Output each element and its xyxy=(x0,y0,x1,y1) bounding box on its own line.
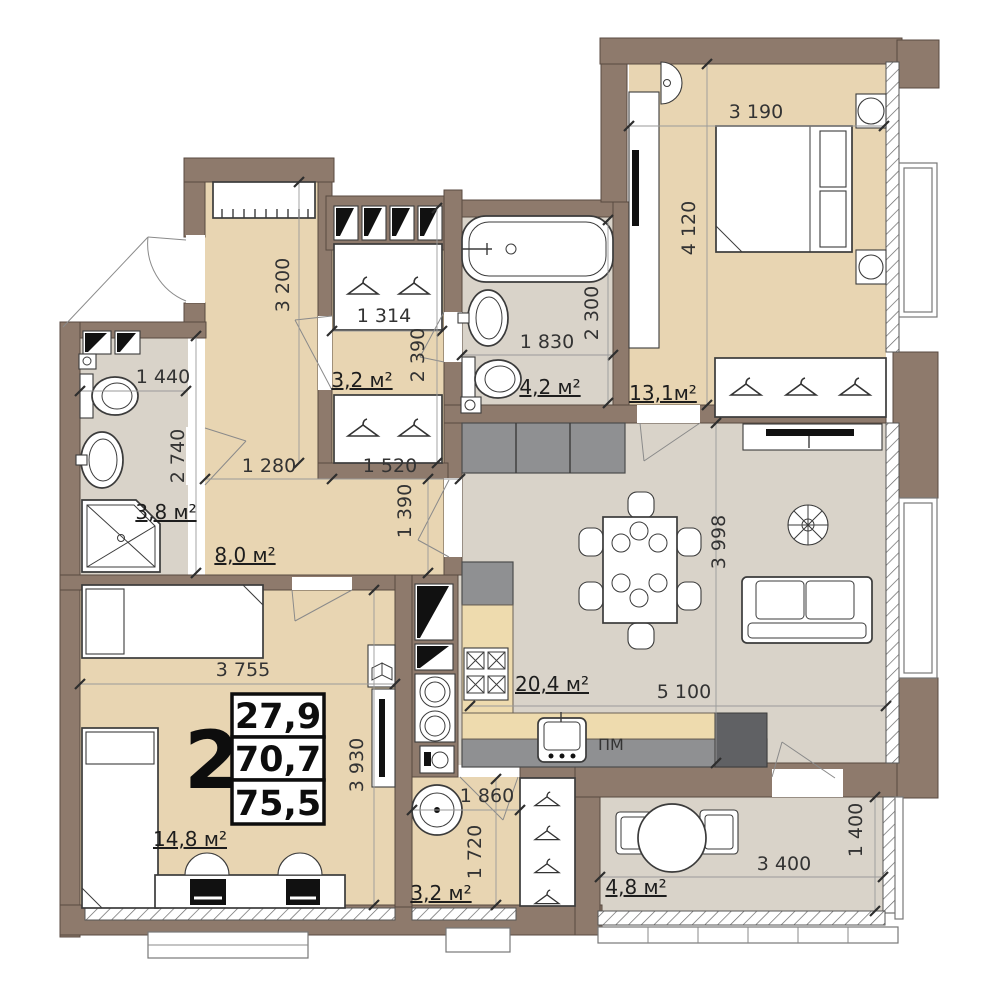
pillar-mid-right xyxy=(893,352,938,498)
area-balcony: 4,8 м² xyxy=(605,875,666,899)
floor-plan-page: 3 190 4 120 3 200 1 314 2 390 1 830 2 30… xyxy=(0,0,1000,1000)
kitchen-sink xyxy=(538,712,586,762)
area-bedroom: 13,1м² xyxy=(629,381,697,405)
dim-laundry-depth: 1 720 xyxy=(464,825,486,879)
dim-bathroom-small-width: 1 440 xyxy=(136,366,190,388)
desk-computer xyxy=(286,879,320,905)
area-bathroom-small: 3,8 м² xyxy=(135,500,196,524)
balcony-table xyxy=(638,804,706,872)
children-tv xyxy=(379,699,385,777)
balcony-side-glazing xyxy=(883,797,895,913)
area-laundry: 3,2 м² xyxy=(410,881,471,905)
bedroom-window xyxy=(886,62,899,352)
pillar-top-right xyxy=(897,40,939,88)
dim-hall-passage: 1 390 xyxy=(394,484,416,538)
entrance-opening xyxy=(186,235,205,303)
bathroom-small-vents xyxy=(83,331,140,354)
dim-closet-depth: 2 390 xyxy=(407,328,429,382)
area-children-room: 14,8 м² xyxy=(153,827,227,851)
fridge xyxy=(462,562,513,605)
dim-bathroom-depth: 2 300 xyxy=(581,286,603,340)
entrance-door xyxy=(148,237,186,240)
laundry-window-sill xyxy=(446,928,510,952)
area-bathroom: 4,2 м² xyxy=(519,375,580,399)
dim-corridor-depth: 3 200 xyxy=(272,258,294,312)
kitchen-end-cabinet xyxy=(715,713,767,767)
desk-computer xyxy=(190,879,226,905)
dim-children-width: 3 755 xyxy=(216,659,270,681)
floor-plan-drawing: 3 190 4 120 3 200 1 314 2 390 1 830 2 30… xyxy=(0,0,1000,1000)
area-living-kitchen: 20,4 м² xyxy=(515,672,589,696)
toilet-small-tank xyxy=(80,374,93,418)
living-window xyxy=(886,423,899,763)
stamp-living-area: 27,9 xyxy=(235,697,321,737)
pillow xyxy=(86,589,124,654)
balcony-front-glazing xyxy=(598,911,885,925)
dim-laundry-width: 1 860 xyxy=(460,785,514,807)
pillar-bottom-right xyxy=(897,678,938,798)
pillow xyxy=(820,191,846,247)
area-closet: 3,2 м² xyxy=(331,368,392,392)
kitchen-tall-cabinets xyxy=(462,423,625,473)
living-tv xyxy=(766,429,854,436)
dim-children-depth: 3 930 xyxy=(346,738,368,792)
dim-bedroom-width: 3 190 xyxy=(729,101,783,123)
bedroom-tv xyxy=(632,150,639,226)
dim-closet-outer-width: 1 520 xyxy=(363,455,417,477)
wardrobe-section-bottom xyxy=(334,395,442,463)
dim-bedroom-depth: 4 120 xyxy=(678,201,700,255)
dishwasher-label: ПМ xyxy=(598,735,624,754)
tv-console xyxy=(743,424,882,450)
dim-living-depth: 3 998 xyxy=(708,515,730,569)
area-hall: 8,0 м² xyxy=(214,543,275,567)
dim-closet-width: 1 314 xyxy=(357,305,411,327)
pillow xyxy=(820,131,846,187)
sofa xyxy=(742,577,872,643)
dim-hall-width: 1 280 xyxy=(242,455,296,477)
floor-corridor xyxy=(205,182,318,475)
corridor-furniture xyxy=(213,182,315,218)
stove xyxy=(464,648,508,700)
apartment-stamp: 2 27,9 70,7 75,5 xyxy=(184,694,324,824)
toilet-tank xyxy=(462,357,475,401)
dim-bathroom-width: 1 830 xyxy=(520,331,574,353)
dim-bathroom-small-depth: 2 740 xyxy=(167,429,189,483)
children-window xyxy=(85,908,395,920)
kitchen-counter-bottom xyxy=(462,713,715,739)
stamp-area-no-balcony: 70,7 xyxy=(235,740,321,780)
stamp-total-area: 75,5 xyxy=(235,784,321,824)
plant xyxy=(788,505,828,545)
dim-balcony-depth: 1 400 xyxy=(845,803,867,857)
hallway-closet xyxy=(213,182,315,218)
laundry-window xyxy=(412,908,516,920)
pillow xyxy=(86,732,154,764)
dim-living-width: 5 100 xyxy=(657,681,711,703)
dim-balcony-width: 3 400 xyxy=(757,853,811,875)
